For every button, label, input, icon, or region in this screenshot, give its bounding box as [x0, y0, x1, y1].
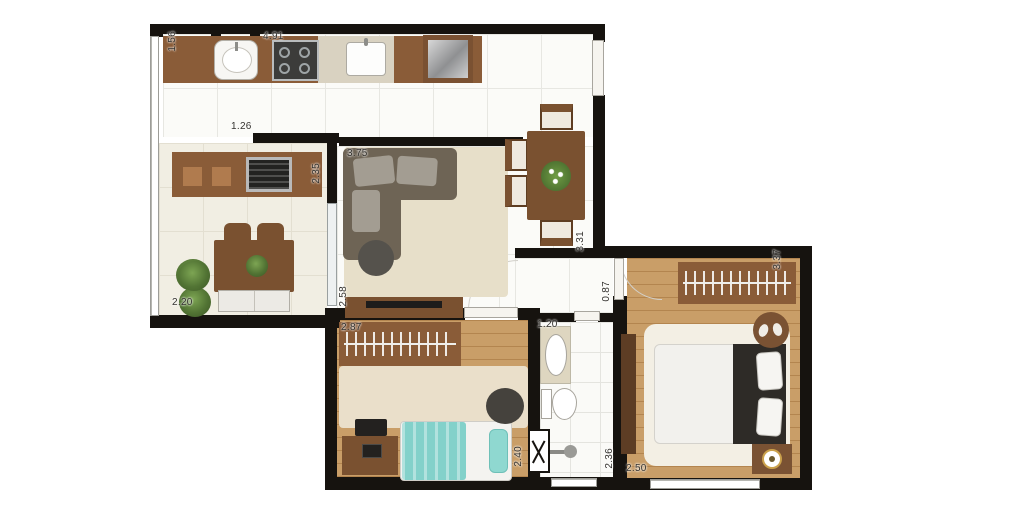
desk — [342, 436, 398, 475]
decor-icon — [757, 323, 770, 338]
dim-bathroom-length: 2.36 — [604, 448, 615, 469]
tv-panel — [621, 334, 636, 454]
dim-balcony-depth: 2.35 — [311, 163, 322, 184]
pillow — [756, 397, 784, 437]
toilet-tank — [541, 389, 552, 419]
wall — [800, 246, 812, 490]
decor-icon — [771, 322, 783, 337]
bed-blanket — [402, 422, 466, 480]
burner-icon — [279, 47, 290, 58]
wall — [150, 315, 340, 328]
dim-living-width: 3.75 — [347, 148, 368, 159]
burner-icon — [299, 47, 310, 58]
wall — [325, 308, 337, 490]
wall — [253, 133, 339, 143]
dining-chair — [540, 104, 573, 130]
shaft — [528, 429, 550, 473]
round-side-table — [753, 312, 789, 348]
bedroom1-window — [650, 479, 760, 489]
plant-icon — [246, 255, 268, 277]
dining-chair — [505, 139, 528, 171]
stool — [181, 165, 204, 188]
centerpiece-plant-icon — [541, 161, 571, 191]
pillow — [489, 429, 508, 473]
balcony-sliding-door — [327, 203, 337, 306]
lamp-icon — [762, 449, 782, 469]
bathroom-sink — [545, 334, 567, 376]
bedroom1-door — [614, 258, 624, 300]
grill-icon — [246, 157, 292, 192]
faucet-icon — [364, 38, 368, 46]
tv-console — [345, 297, 463, 318]
dim-bedroom2-length: 2.40 — [513, 446, 524, 467]
laundry-tub — [214, 40, 258, 80]
bench-divider — [254, 291, 255, 311]
entry-door — [592, 40, 604, 96]
sofa-cushion — [353, 155, 396, 187]
dining-chair — [540, 220, 573, 246]
nightstand — [752, 444, 792, 474]
dim-hall-width: 0.87 — [601, 281, 612, 302]
dim-bedroom2-width: 2.87 — [341, 322, 362, 333]
pillow — [756, 351, 784, 391]
dim-bathroom-width: 1.20 — [537, 319, 558, 330]
tv-icon — [366, 301, 442, 308]
sofa-cushion — [352, 190, 380, 232]
bathroom-window — [551, 478, 597, 487]
shower-head-icon — [564, 445, 577, 458]
monitor-icon — [355, 419, 387, 436]
pouf — [486, 388, 524, 424]
dim-bedroom1-width: 2.50 — [626, 463, 647, 474]
double-bed — [654, 344, 734, 444]
wall — [155, 24, 605, 34]
wall — [339, 137, 523, 146]
dim-kitchen-opening: 1.26 — [231, 121, 252, 132]
floor-plan-canvas: 1.56 4.91 1.26 2.35 2.20 3.75 2.58 3.31 … — [0, 0, 1024, 510]
wall — [593, 95, 605, 246]
dim-kitchen-depth: 1.56 — [167, 31, 178, 52]
bedroom2-door — [464, 307, 518, 318]
wall — [327, 143, 337, 205]
faucet-icon — [235, 42, 238, 51]
hallway-floor — [515, 258, 613, 313]
dining-chair — [505, 175, 528, 207]
dim-balcony-length: 2.20 — [172, 297, 193, 308]
pouf — [358, 240, 394, 276]
wall — [598, 313, 613, 322]
burner-icon — [279, 63, 290, 74]
kitchen-sink — [346, 42, 386, 76]
burner-icon — [299, 63, 310, 74]
bathroom-door — [574, 311, 600, 321]
lamp-bulb-icon — [769, 456, 775, 462]
dim-bedroom1-length: 3.37 — [772, 249, 783, 270]
dim-living-length: 3.31 — [575, 231, 586, 252]
sofa-cushion — [396, 156, 438, 187]
wardrobe-rod — [683, 282, 792, 284]
keyboard-icon — [362, 444, 382, 458]
stove-icon — [272, 40, 319, 81]
wardrobe-rod — [344, 343, 456, 345]
balcony-railing-window — [150, 36, 159, 316]
stool — [210, 165, 233, 188]
dim-kitchen-length: 4.91 — [263, 31, 284, 42]
refrigerator-icon — [423, 35, 473, 83]
plant-icon — [178, 261, 210, 291]
dim-living-tv-wall: 2.58 — [338, 286, 349, 307]
balcony-bench — [218, 290, 290, 312]
